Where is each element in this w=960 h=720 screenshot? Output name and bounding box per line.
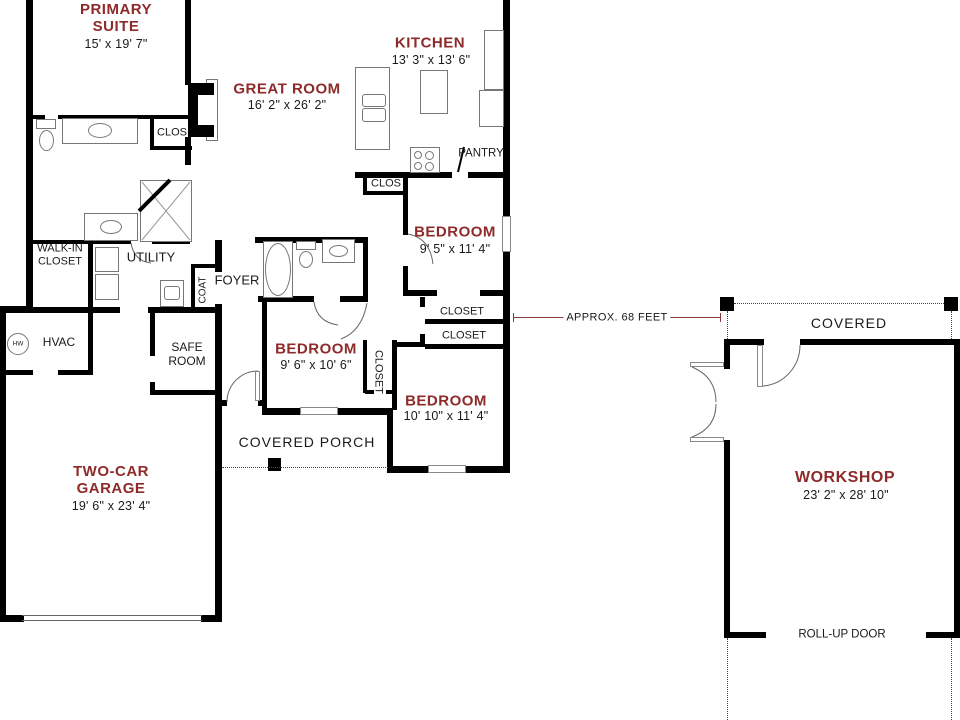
water-heater-label: HW	[13, 340, 24, 347]
room-dims-bedroom-right: 9' 5" x 11' 4"	[420, 242, 490, 256]
door-leaf	[757, 345, 763, 387]
closet-label-primary: CLOS	[157, 127, 187, 140]
room-dims-kitchen: 13' 3" x 13' 6"	[392, 53, 471, 67]
room-label-workshop: WORKSHOP	[795, 469, 895, 487]
floor-plan: PRIMARY SUITE 15' x 19' 7" GREAT ROOM 16…	[0, 0, 960, 720]
room-label-primary-suite: PRIMARY SUITE	[70, 1, 162, 36]
room-dims-primary-suite: 15' x 19' 7"	[84, 37, 147, 51]
coat-label: COAT	[197, 276, 209, 303]
covered-porch-label: COVERED PORCH	[239, 434, 376, 450]
roll-up-door-label: ROLL-UP DOOR	[795, 628, 888, 641]
room-dims-garage: 19' 6" x 23' 4"	[72, 499, 151, 513]
room-label-bedroom-bottom: BEDROOM	[405, 392, 487, 409]
door-leaf	[255, 371, 260, 401]
room-dims-workshop: 23' 2" x 28' 10"	[803, 488, 889, 502]
room-label-garage: TWO-CAR GARAGE	[65, 463, 157, 498]
safe-room-label: SAFE ROOM	[161, 341, 213, 369]
door-leaf	[690, 437, 724, 442]
window	[300, 407, 338, 415]
door-swing-arcs	[0, 0, 960, 720]
window	[428, 465, 466, 473]
utility-label: UTILITY	[127, 251, 175, 266]
covered-label: COVERED	[811, 315, 887, 331]
hvac-label: HVAC	[43, 336, 75, 350]
window	[502, 216, 511, 252]
pantry-label: PANTRY	[458, 147, 504, 160]
foyer-label: FOYER	[215, 274, 260, 289]
room-label-kitchen: KITCHEN	[395, 34, 465, 51]
room-label-bedroom-right: BEDROOM	[414, 223, 496, 240]
room-label-great-room: GREAT ROOM	[233, 80, 340, 97]
door-leaf	[690, 362, 724, 367]
closet-label-upper: CLOSET	[440, 306, 484, 319]
room-dims-bedroom-bottom: 10' 10" x 11' 4"	[404, 409, 489, 423]
distance-annotation: APPROX. 68 FEET	[563, 312, 670, 325]
closet-label-kitchen: CLOS	[371, 178, 401, 191]
closet-label-vertical: CLOSET	[372, 350, 385, 394]
room-dims-bedroom-middle: 9' 6" x 10' 6"	[280, 358, 351, 372]
walk-in-closet-label: WALK-IN CLOSET	[25, 242, 95, 267]
closet-label-lower: CLOSET	[442, 330, 486, 343]
room-label-bedroom-middle: BEDROOM	[275, 340, 357, 357]
room-dims-great-room: 16' 2" x 26' 2"	[248, 98, 327, 112]
